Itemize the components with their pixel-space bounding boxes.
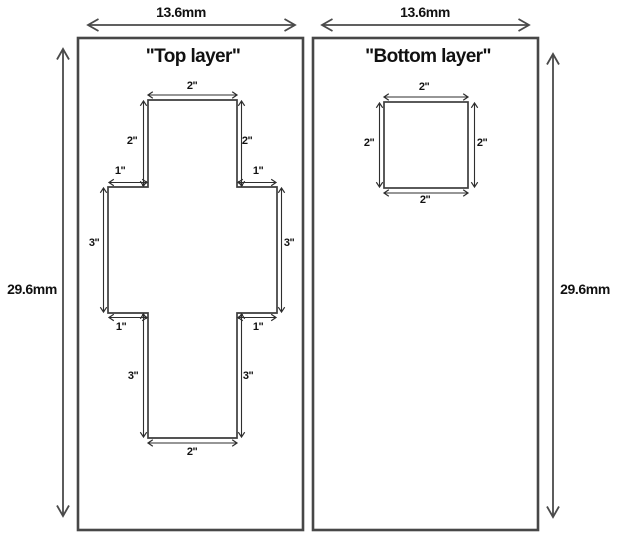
top-layer-title: "Top layer" (146, 46, 240, 67)
top-layer-height-label: 29.6mm (7, 281, 57, 297)
cross-upper-right-notch-label: 1" (253, 165, 264, 177)
square-right-height-label: 2" (477, 137, 488, 149)
square-top-width-label: 2" (419, 81, 430, 93)
top-layer-width-label: 13.6mm (156, 4, 206, 20)
antenna-layers-diagram: "Top layer" 13.6mm 29.6mm 2" 2" 2" 1" 1"… (0, 0, 620, 547)
square-bottom-width-label: 2" (420, 194, 431, 206)
cross-lower-right-height-label: 3" (243, 370, 254, 382)
bottom-layer-width-label: 13.6mm (400, 4, 450, 20)
cross-lower-left-height-label: 3" (128, 370, 139, 382)
cross-upper-left-notch-label: 1" (115, 165, 126, 177)
cross-upper-right-height-label: 2" (242, 135, 253, 147)
cross-top-width-label: 2" (187, 80, 198, 92)
cross-bottom-width-label: 2" (187, 446, 198, 458)
bottom-layer-title: "Bottom layer" (365, 46, 491, 67)
square-patch-shape (384, 102, 468, 188)
diagram-canvas: "Top layer" 13.6mm 29.6mm 2" 2" 2" 1" 1"… (0, 0, 620, 547)
bottom-layer-height-label: 29.6mm (560, 281, 610, 297)
bottom-layer-board-outline (313, 38, 538, 530)
cross-mid-left-height-label: 3" (89, 237, 100, 249)
cross-trace-shape (108, 100, 277, 438)
square-left-height-label: 2" (364, 137, 375, 149)
cross-upper-left-height-label: 2" (127, 135, 138, 147)
top-layer-panel: "Top layer" 13.6mm 29.6mm 2" 2" 2" 1" 1"… (7, 4, 303, 530)
cross-lower-left-notch-label: 1" (116, 321, 127, 333)
bottom-layer-panel: "Bottom layer" 13.6mm 29.6mm 2" 2" 2" 2" (313, 4, 610, 530)
cross-mid-right-height-label: 3" (284, 237, 295, 249)
cross-lower-right-notch-label: 1" (253, 321, 264, 333)
